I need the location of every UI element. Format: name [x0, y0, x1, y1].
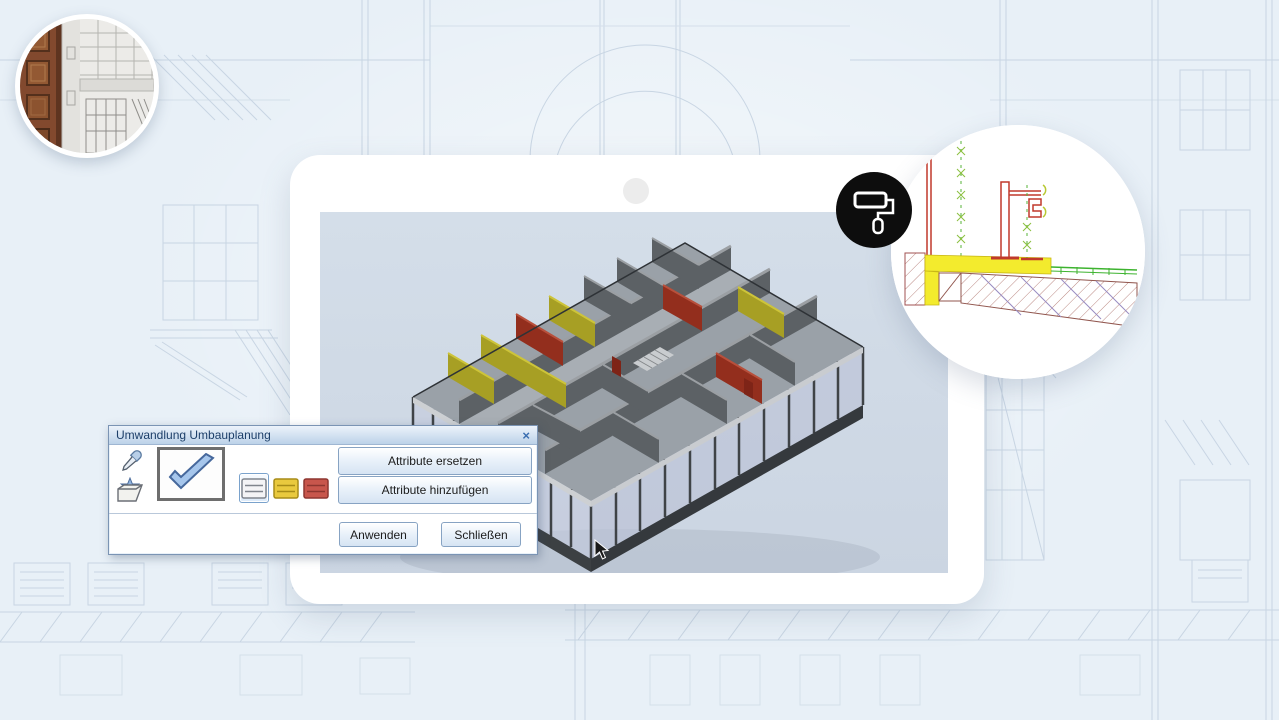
attribute-add-button[interactable]: Attribute hinzufügen — [338, 476, 532, 504]
paint-roller-icon — [851, 185, 897, 235]
attribute-replace-button[interactable]: Attribute ersetzen — [338, 447, 532, 475]
cad-detail-inset — [891, 125, 1145, 379]
close-icon[interactable]: × — [522, 429, 530, 442]
close-label: Schließen — [454, 528, 507, 542]
wall-new-yellow-icon[interactable] — [273, 478, 299, 499]
pipette-icon[interactable] — [119, 449, 143, 473]
dialog-separator — [109, 513, 537, 514]
facade-photo-inset — [15, 14, 159, 158]
apply-button[interactable]: Anwenden — [339, 522, 418, 547]
check-icon — [163, 453, 219, 495]
wall-demolition-red-icon[interactable] — [303, 478, 329, 499]
folder-favorite-icon[interactable] — [116, 477, 144, 503]
cad-detail-art — [891, 125, 1145, 379]
dialog-titlebar[interactable]: Umwandlung Umbauplanung × — [109, 426, 537, 445]
stone-jamb — [62, 19, 80, 153]
dialog-body: Attribute ersetzen Attribute hinzufügen … — [109, 445, 537, 552]
tablet-camera-dot — [623, 178, 649, 204]
dialog-title: Umwandlung Umbauplanung — [116, 428, 271, 442]
stage: Umwandlung Umbauplanung × — [0, 0, 1279, 720]
facade-photo-art — [20, 19, 154, 153]
apply-label: Anwenden — [350, 528, 407, 542]
wall-existing-icon[interactable] — [239, 473, 269, 503]
attribute-replace-label: Attribute ersetzen — [388, 454, 482, 468]
close-button[interactable]: Schließen — [441, 522, 521, 547]
attribute-add-label: Attribute hinzufügen — [382, 483, 489, 497]
dialog-umwandlung: Umwandlung Umbauplanung × — [108, 425, 538, 555]
confirm-check-button[interactable] — [157, 447, 225, 501]
paint-roller-badge — [836, 172, 912, 248]
mouse-cursor — [594, 539, 610, 566]
